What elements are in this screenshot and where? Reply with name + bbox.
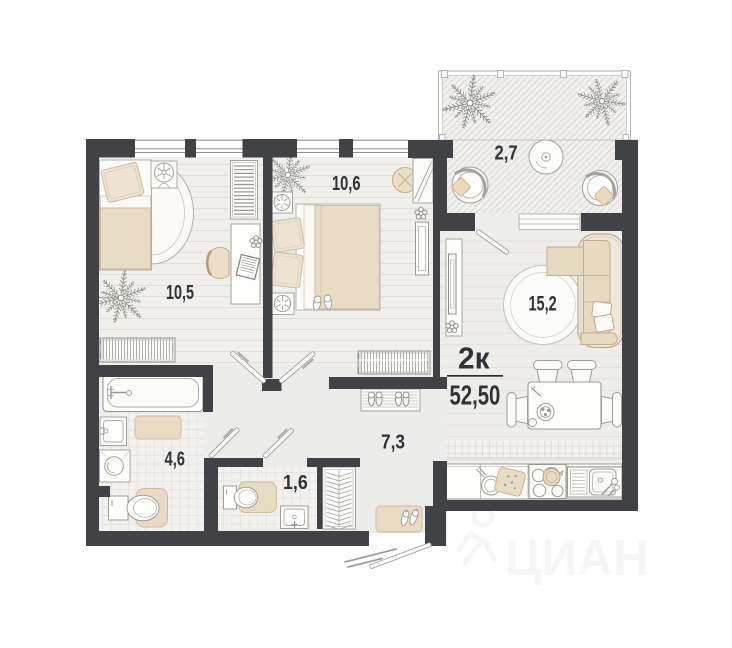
svg-text:7,3: 7,3 bbox=[381, 431, 405, 454]
svg-text:10,6: 10,6 bbox=[332, 172, 361, 195]
svg-text:2к: 2к bbox=[458, 341, 490, 376]
svg-text:4,6: 4,6 bbox=[165, 448, 186, 471]
svg-text:15,2: 15,2 bbox=[529, 293, 557, 316]
svg-text:2,7: 2,7 bbox=[495, 142, 518, 165]
svg-text:1,6: 1,6 bbox=[283, 471, 308, 494]
svg-text:10,5: 10,5 bbox=[166, 281, 194, 304]
svg-text:ЦИАН: ЦИАН bbox=[505, 530, 649, 586]
svg-text:52,50: 52,50 bbox=[450, 380, 501, 411]
